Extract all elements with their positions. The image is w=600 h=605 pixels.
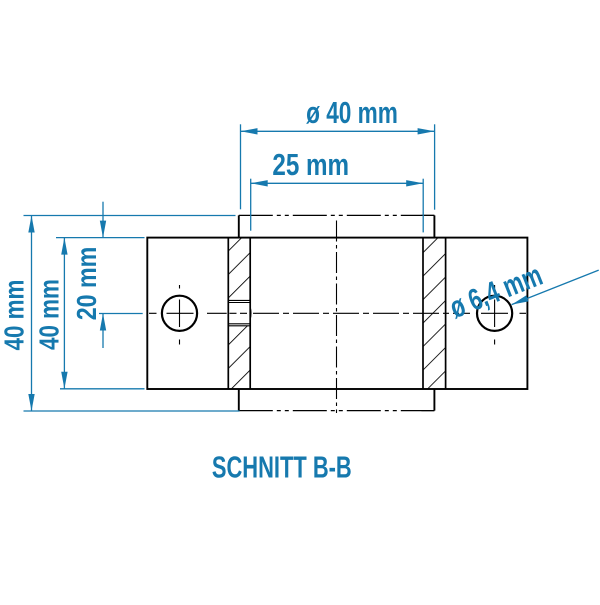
svg-text:40 mm: 40 mm (34, 279, 65, 350)
svg-text:25 mm: 25 mm (272, 147, 349, 181)
svg-text:ø 6,4 mm: ø 6,4 mm (445, 258, 547, 325)
svg-text:ø 40 mm: ø 40 mm (306, 96, 398, 130)
svg-text:SCHNITT B-B: SCHNITT B-B (212, 450, 352, 484)
svg-text:20 mm: 20 mm (72, 247, 102, 321)
svg-text:40 mm: 40 mm (0, 280, 30, 351)
